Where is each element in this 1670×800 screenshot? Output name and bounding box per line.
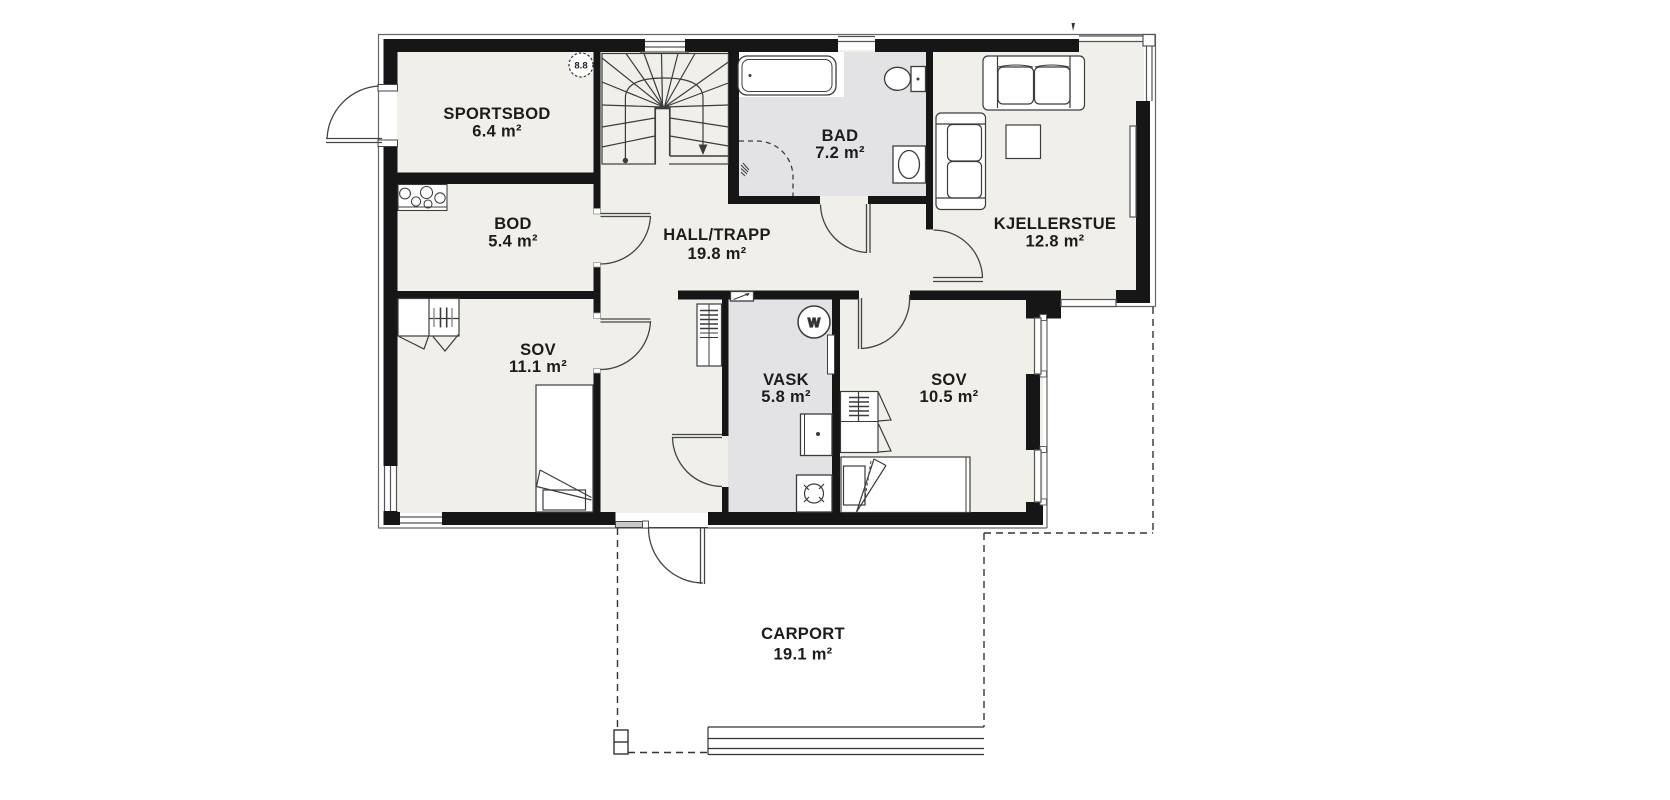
svg-text:VASK: VASK xyxy=(763,371,809,389)
svg-text:11.1 m²: 11.1 m² xyxy=(509,358,567,376)
svg-text:19.1 m²: 19.1 m² xyxy=(774,646,833,664)
svg-text:6.4 m²: 6.4 m² xyxy=(472,123,522,141)
svg-text:7.2 m²: 7.2 m² xyxy=(815,144,865,162)
svg-text:W: W xyxy=(808,315,821,330)
svg-text:BOD: BOD xyxy=(494,215,532,233)
svg-text:HALL/TRAPP: HALL/TRAPP xyxy=(663,226,771,244)
svg-text:CARPORT: CARPORT xyxy=(761,625,845,643)
svg-text:8.8: 8.8 xyxy=(574,61,587,72)
svg-text:SPORTSBOD: SPORTSBOD xyxy=(443,105,550,123)
svg-text:KJELLERSTUE: KJELLERSTUE xyxy=(994,215,1116,233)
svg-text:BAD: BAD xyxy=(822,127,859,145)
svg-text:10.5 m²: 10.5 m² xyxy=(920,388,979,406)
svg-text:SOV: SOV xyxy=(520,341,556,359)
svg-text:5.8 m²: 5.8 m² xyxy=(761,388,811,406)
svg-text:12.8 m²: 12.8 m² xyxy=(1026,233,1085,251)
svg-text:5.4 m²: 5.4 m² xyxy=(488,233,538,251)
svg-text:SOV: SOV xyxy=(931,371,967,389)
svg-text:19.8 m²: 19.8 m² xyxy=(688,245,747,263)
